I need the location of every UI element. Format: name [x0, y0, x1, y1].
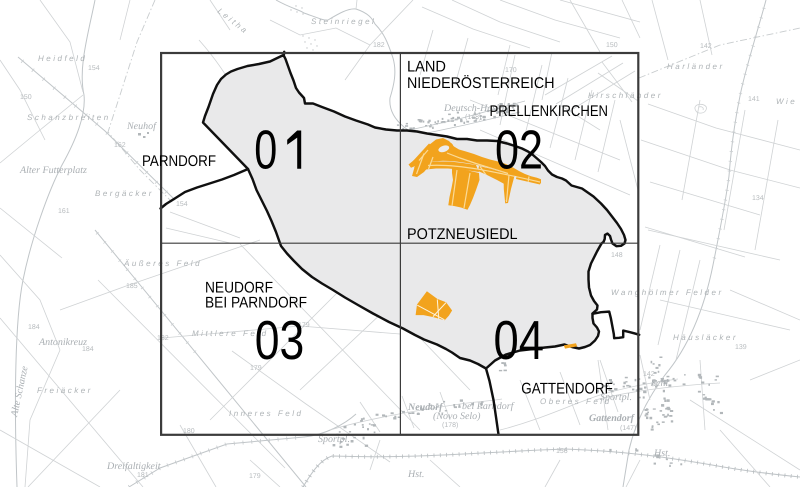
- svg-text:Gattendorf: Gattendorf: [589, 413, 636, 424]
- svg-text:02: 02: [495, 119, 543, 181]
- svg-text:0: 0: [254, 119, 277, 181]
- svg-text:154: 154: [88, 65, 100, 72]
- svg-text:Äußeres Feld: Äußeres Feld: [123, 259, 202, 268]
- svg-text:Freiäcker: Freiäcker: [37, 386, 93, 395]
- svg-text:NIEDERÖSTERREICH: NIEDERÖSTERREICH: [407, 75, 555, 92]
- svg-text:Hst.: Hst.: [653, 448, 670, 459]
- svg-text:Heidfeld: Heidfeld: [38, 54, 87, 63]
- svg-text:(148): (148): [465, 113, 481, 121]
- svg-text:Steinriegel: Steinriegel: [311, 17, 376, 26]
- svg-text:04: 04: [494, 309, 545, 371]
- svg-text:150: 150: [20, 94, 32, 101]
- svg-text:Schl.: Schl.: [651, 378, 671, 389]
- svg-text:184: 184: [82, 346, 94, 353]
- svg-text:Inneres Feld: Inneres Feld: [229, 409, 303, 418]
- svg-text:161: 161: [58, 208, 70, 215]
- svg-text:184: 184: [28, 324, 40, 331]
- svg-text:(147): (147): [620, 424, 636, 432]
- svg-text:156: 156: [556, 448, 568, 455]
- svg-text:Antonikreuz: Antonikreuz: [38, 337, 87, 348]
- svg-text:150: 150: [606, 42, 618, 49]
- svg-text:Bergäcker: Bergäcker: [95, 189, 154, 198]
- svg-text:Wie: Wie: [776, 97, 797, 106]
- svg-text:Schanzbreiten: Schanzbreiten: [27, 113, 111, 122]
- svg-text:03: 03: [255, 309, 304, 371]
- svg-text:PARNDORF: PARNDORF: [142, 153, 216, 170]
- svg-text:Alter Futterplatz: Alter Futterplatz: [19, 165, 87, 176]
- svg-text:GATTENDORF: GATTENDORF: [521, 381, 613, 398]
- svg-text:(178): (178): [442, 421, 458, 429]
- svg-text:154: 154: [176, 201, 188, 208]
- svg-text:148: 148: [611, 252, 623, 259]
- svg-text:Wanghölmer Felder: Wanghölmer Felder: [611, 288, 724, 297]
- svg-text:Häusläcker: Häusläcker: [673, 333, 738, 342]
- svg-text:170: 170: [505, 67, 517, 74]
- svg-text:162: 162: [114, 142, 126, 149]
- svg-text:Hst.: Hst.: [407, 469, 424, 480]
- svg-text:POTZNEUSIEDL: POTZNEUSIEDL: [407, 226, 518, 243]
- svg-text:182: 182: [373, 42, 385, 49]
- svg-text:LAND: LAND: [407, 59, 446, 76]
- svg-text:141: 141: [748, 96, 760, 103]
- svg-text:142: 142: [643, 371, 655, 378]
- svg-text:Harländer: Harländer: [667, 62, 725, 71]
- svg-text:179: 179: [249, 473, 261, 480]
- svg-text:Hirschländer: Hirschländer: [588, 91, 663, 100]
- svg-text:Dreifaltigkeit: Dreifaltigkeit: [106, 461, 161, 472]
- svg-text:134: 134: [752, 195, 764, 202]
- svg-text:Neuhof: Neuhof: [126, 121, 157, 132]
- svg-text:PRELLENKIRCHEN: PRELLENKIRCHEN: [490, 103, 609, 120]
- svg-text:182: 182: [157, 335, 169, 342]
- svg-text:185: 185: [126, 283, 138, 290]
- svg-text:181: 181: [137, 472, 149, 479]
- svg-text:139: 139: [735, 344, 747, 351]
- svg-text:(Novo Selo): (Novo Selo): [433, 411, 481, 422]
- svg-text:142: 142: [700, 43, 712, 50]
